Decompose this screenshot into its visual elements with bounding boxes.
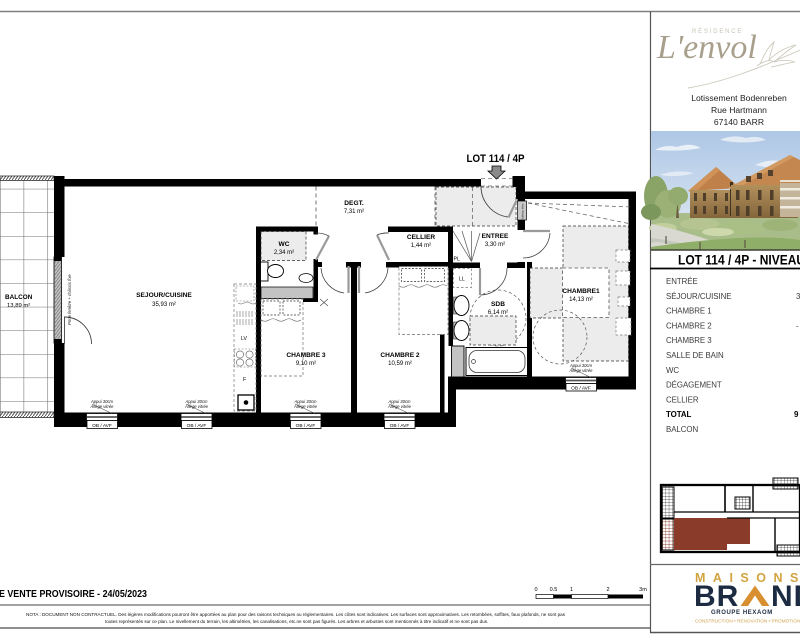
svg-text:2,34 m²: 2,34 m² [274,250,294,256]
svg-text:WC: WC [666,366,679,375]
svg-text:9: 9 [794,410,799,419]
svg-text:6,14 m²: 6,14 m² [488,310,508,316]
svg-text:CELLIER: CELLIER [666,395,699,404]
svg-text:14,13 m²: 14,13 m² [569,297,593,303]
svg-text:13,89 m²: 13,89 m² [7,303,30,309]
svg-text:CHAMBRE 1: CHAMBRE 1 [666,307,712,316]
svg-text:CHAMBRE1: CHAMBRE1 [562,288,600,295]
svg-text:3,30 m²: 3,30 m² [485,242,505,248]
svg-text:2: 2 [606,587,609,593]
svg-text:SALLE DE BAIN: SALLE DE BAIN [666,351,724,360]
svg-text:10,59 m²: 10,59 m² [388,361,412,367]
svg-text:LV: LV [241,336,247,342]
svg-text:9,10 m²: 9,10 m² [296,361,316,367]
svg-text:CHAMBRE 2: CHAMBRE 2 [666,321,712,330]
svg-text:SÉJOUR/CUISINE: SÉJOUR/CUISINE [666,292,732,301]
svg-text:LOT 114 / 4P: LOT 114 / 4P [467,153,525,165]
svg-text:BALCON: BALCON [666,425,699,434]
svg-text:1: 1 [570,587,573,593]
svg-text:Tableau élec: Tableau élec [521,203,525,220]
svg-text:BR: BR [694,580,739,613]
svg-text:ENTREE: ENTREE [482,233,509,240]
svg-text:OB / AVF: OB / AVF [571,386,591,392]
svg-text:0.5: 0.5 [550,587,558,593]
svg-text:CHAMBRE 2: CHAMBRE 2 [380,352,420,359]
svg-text:F: F [243,377,246,383]
svg-text:Rue Hartmann: Rue Hartmann [711,105,767,115]
svg-text:3m: 3m [639,587,647,593]
svg-text:SEJOUR/CUISINE: SEJOUR/CUISINE [136,292,192,299]
svg-text:OB / AVF: OB / AVF [92,423,112,429]
svg-text:BALCON: BALCON [5,294,33,301]
svg-text:toutes représentés sur ce plan: toutes représentés sur ce plan. Le nivel… [105,619,488,624]
svg-text:ND: ND [771,580,800,613]
svg-text:1,44 m²: 1,44 m² [411,243,431,249]
svg-text:WC: WC [279,241,290,248]
svg-text:35,93 m²: 35,93 m² [152,302,176,308]
svg-text:67140 BARR: 67140 BARR [714,117,764,127]
svg-text:TOTAL: TOTAL [666,410,692,419]
svg-text:CELLIER: CELLIER [407,234,435,241]
svg-text:-: - [796,321,799,330]
svg-text:NOTA : DOCUMENT NON CONTRACTUE: NOTA : DOCUMENT NON CONTRACTUEL. Des lég… [26,612,566,617]
svg-text:OB / AVF: OB / AVF [390,423,410,429]
svg-text:0: 0 [534,587,537,593]
svg-text:CHAMBRE 3: CHAMBRE 3 [286,352,326,359]
svg-text:Lotissement Bodenreben: Lotissement Bodenreben [691,93,787,103]
svg-text:SDB: SDB [491,301,505,308]
svg-text:LL: LL [459,277,465,283]
svg-text:Porte fenêtre + châssis fixe: Porte fenêtre + châssis fixe [67,274,72,325]
svg-text:LOT 114 / 4P - NIVEAU 1: LOT 114 / 4P - NIVEAU 1 [678,253,800,268]
svg-text:OB / AVF: OB / AVF [187,423,207,429]
svg-text:E VENTE PROVISOIRE - 24/05/202: E VENTE PROVISOIRE - 24/05/2023 [0,589,147,600]
svg-text:CONSTRUCTION • RÉNOVATION • PR: CONSTRUCTION • RÉNOVATION • PROMOTION [695,618,800,624]
svg-text:OB / AVF: OB / AVF [296,423,316,429]
svg-text:GROUPE HEXAOM: GROUPE HEXAOM [711,610,773,616]
svg-text:PL: PL [454,257,460,263]
svg-text:ENTRÉE: ENTRÉE [666,277,698,286]
svg-text:DÉGAGEMENT: DÉGAGEMENT [666,381,722,390]
svg-text:3: 3 [796,292,800,301]
svg-text:CHAMBRE 3: CHAMBRE 3 [666,336,712,345]
svg-text:7,31 m²: 7,31 m² [344,209,364,215]
svg-text:DEGT.: DEGT. [344,200,364,207]
svg-text:L'envol: L'envol [656,29,757,66]
